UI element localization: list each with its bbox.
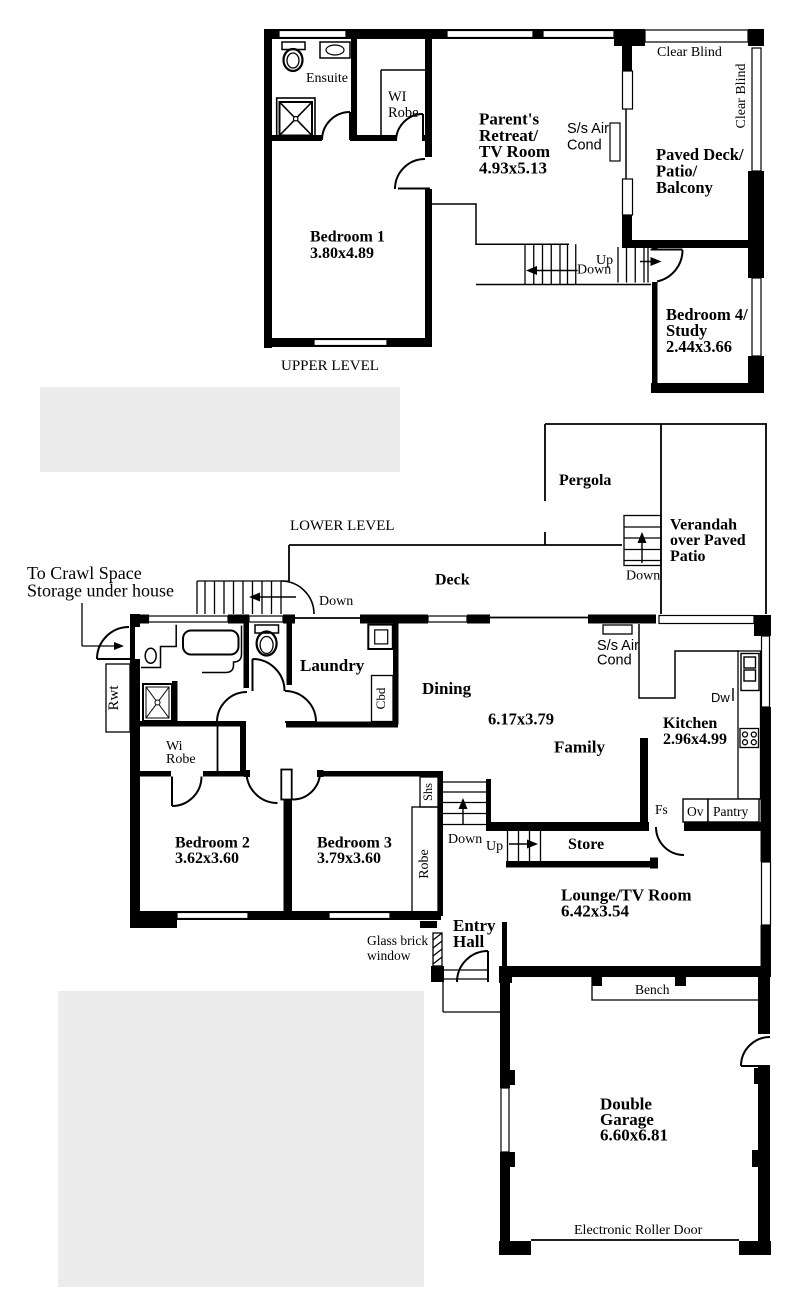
svg-text:Bedroom 2: Bedroom 2	[175, 835, 250, 852]
svg-text:Ov: Ov	[687, 804, 704, 819]
svg-text:Hall: Hall	[453, 932, 484, 951]
svg-text:Clear Blind: Clear Blind	[734, 64, 749, 129]
svg-text:Down: Down	[319, 594, 353, 609]
svg-text:Rwt: Rwt	[106, 685, 122, 711]
svg-text:3.79x3.60: 3.79x3.60	[317, 850, 381, 867]
svg-text:3.80x4.89: 3.80x4.89	[310, 245, 374, 262]
svg-text:Bench: Bench	[635, 982, 670, 997]
svg-text:2.44x3.66: 2.44x3.66	[666, 337, 732, 356]
svg-text:Robe: Robe	[388, 105, 419, 121]
svg-text:6.60x6.81: 6.60x6.81	[600, 1126, 668, 1145]
svg-text:Shs: Shs	[421, 783, 435, 801]
svg-text:window: window	[367, 948, 411, 963]
svg-text:Balcony: Balcony	[656, 178, 714, 197]
svg-text:Fs: Fs	[655, 802, 668, 817]
svg-text:Robe: Robe	[417, 849, 432, 879]
svg-text:over Paved: over Paved	[670, 532, 746, 549]
svg-text:LOWER LEVEL: LOWER LEVEL	[290, 518, 395, 534]
svg-text:2.96x4.99: 2.96x4.99	[663, 731, 727, 748]
svg-text:Ensuite: Ensuite	[306, 71, 348, 86]
svg-text:Laundry: Laundry	[300, 656, 365, 675]
svg-text:Down: Down	[577, 263, 611, 278]
svg-text:Down: Down	[448, 832, 482, 847]
svg-text:Store: Store	[568, 836, 604, 853]
svg-text:Clear Blind: Clear Blind	[657, 45, 722, 60]
svg-text:Bedroom 3: Bedroom 3	[317, 835, 392, 852]
svg-text:Storage under house: Storage under house	[27, 581, 174, 601]
svg-text:Cbd: Cbd	[373, 687, 388, 709]
svg-text:Verandah: Verandah	[670, 517, 737, 534]
svg-text:Glass brick: Glass brick	[367, 933, 428, 948]
svg-text:Family: Family	[554, 738, 605, 757]
svg-text:Electronic Roller Door: Electronic Roller Door	[574, 1223, 703, 1238]
svg-text:Down: Down	[626, 569, 660, 584]
svg-text:UPPER LEVEL: UPPER LEVEL	[281, 358, 379, 374]
svg-text:S/s Air: S/s Air	[567, 121, 609, 137]
svg-text:4.93x5.13: 4.93x5.13	[479, 159, 547, 178]
svg-text:Deck: Deck	[435, 572, 470, 589]
svg-text:Pantry: Pantry	[713, 804, 748, 819]
svg-text:WI: WI	[388, 89, 407, 105]
svg-text:Kitchen: Kitchen	[663, 715, 717, 732]
svg-text:Robe: Robe	[166, 752, 196, 767]
svg-text:Cond: Cond	[567, 138, 602, 154]
svg-text:Up: Up	[486, 839, 503, 854]
svg-text:Bedroom 1: Bedroom 1	[310, 229, 385, 246]
svg-text:Dining: Dining	[422, 679, 472, 698]
svg-text:6.17x3.79: 6.17x3.79	[488, 710, 554, 729]
svg-text:Patio: Patio	[670, 548, 706, 565]
svg-text:Cond: Cond	[597, 653, 632, 669]
svg-text:6.42x3.54: 6.42x3.54	[561, 902, 630, 921]
svg-text:3.62x3.60: 3.62x3.60	[175, 850, 239, 867]
svg-text:Pergola: Pergola	[559, 472, 611, 489]
svg-text:Dw: Dw	[711, 690, 730, 705]
